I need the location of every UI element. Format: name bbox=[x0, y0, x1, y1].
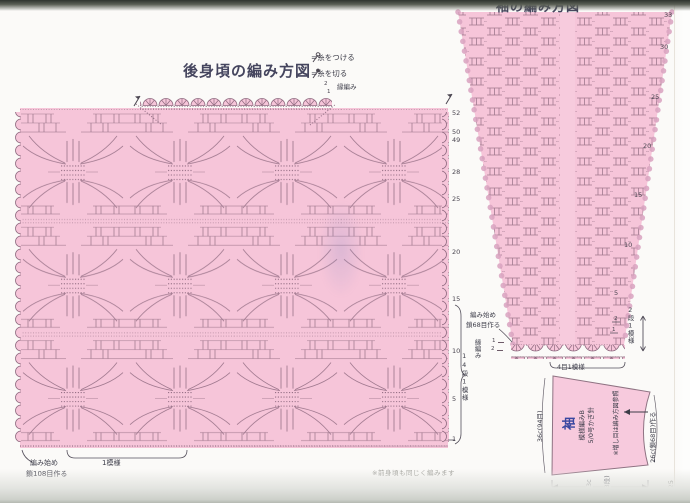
dim-label-cuff-edge: 26c(鎖68目)作る bbox=[650, 395, 657, 479]
hook-size-label: 5/0号かぎ針 bbox=[588, 398, 595, 452]
repeat-row-mark: 1 bbox=[612, 328, 616, 334]
page-edge-top bbox=[0, 0, 690, 11]
start-label: 編み始め bbox=[470, 312, 496, 320]
symbol-legend: =糸をつける =糸を切る bbox=[311, 52, 355, 79]
row-number: 30 bbox=[660, 44, 668, 51]
edging-tick bbox=[498, 342, 504, 343]
page-edge-right bbox=[674, 0, 690, 503]
yarn-cut-flag bbox=[135, 96, 140, 100]
dim-label-top-edge: 36c(94目) bbox=[537, 394, 544, 458]
edging-label: 縁編み bbox=[473, 339, 480, 359]
edging-row-number: 1 bbox=[492, 339, 496, 345]
row-number: 33 bbox=[664, 12, 672, 19]
row-number: 1 bbox=[452, 436, 456, 443]
chain-count-label: 鎖68目作る bbox=[466, 322, 500, 330]
legend-item-attach: =糸をつける bbox=[311, 52, 355, 63]
left-edge-scallops bbox=[14, 112, 21, 442]
sleeve-center-seam bbox=[560, 12, 575, 345]
stitch-pattern-label: 模様編みB bbox=[579, 398, 586, 452]
start-label: 編み始め bbox=[30, 459, 58, 468]
row-number: 20 bbox=[643, 143, 651, 150]
cuff-edging-shells bbox=[511, 345, 625, 359]
repeat-row-mark: 2 bbox=[614, 317, 618, 323]
row-number: 5 bbox=[614, 290, 618, 297]
back-chart-canvas bbox=[14, 92, 484, 472]
row-number: 25 bbox=[651, 94, 659, 101]
pattern-repeat-label: 1模様 bbox=[102, 459, 120, 468]
lace-pattern bbox=[20, 108, 448, 448]
page-edge-bottom bbox=[0, 469, 690, 503]
pattern-repeat-bracket bbox=[67, 450, 187, 458]
row-number: 5 bbox=[452, 396, 456, 403]
part-label: 袖 bbox=[564, 415, 577, 433]
edging-row-number: 2 bbox=[491, 347, 495, 353]
edging-row-number: 2 bbox=[324, 82, 328, 88]
legend-item-cut: =糸を切る bbox=[311, 68, 355, 79]
edging-tick bbox=[497, 350, 503, 351]
scanned-pattern-page: 後身頃の編み方図 =糸をつける =糸を切る 2 1 縁編み bbox=[0, 0, 690, 503]
yarn-cut-icon bbox=[311, 68, 321, 79]
neckline-edging bbox=[140, 94, 332, 109]
scan-watermark bbox=[320, 203, 362, 295]
back-chart-title: 後身頃の編み方図 bbox=[183, 60, 311, 81]
row-repeat-label: 2段1模様 bbox=[626, 306, 633, 344]
row-repeat-arrow bbox=[641, 316, 646, 351]
yarn-attach-icon bbox=[311, 52, 321, 63]
edging-label: 縁編み bbox=[337, 84, 357, 92]
row-number: 15 bbox=[634, 192, 642, 199]
row-number: 10 bbox=[624, 242, 632, 249]
increase-note: ※増し目は編み方図参照 bbox=[614, 381, 620, 465]
right-edge-scallops bbox=[442, 112, 449, 442]
